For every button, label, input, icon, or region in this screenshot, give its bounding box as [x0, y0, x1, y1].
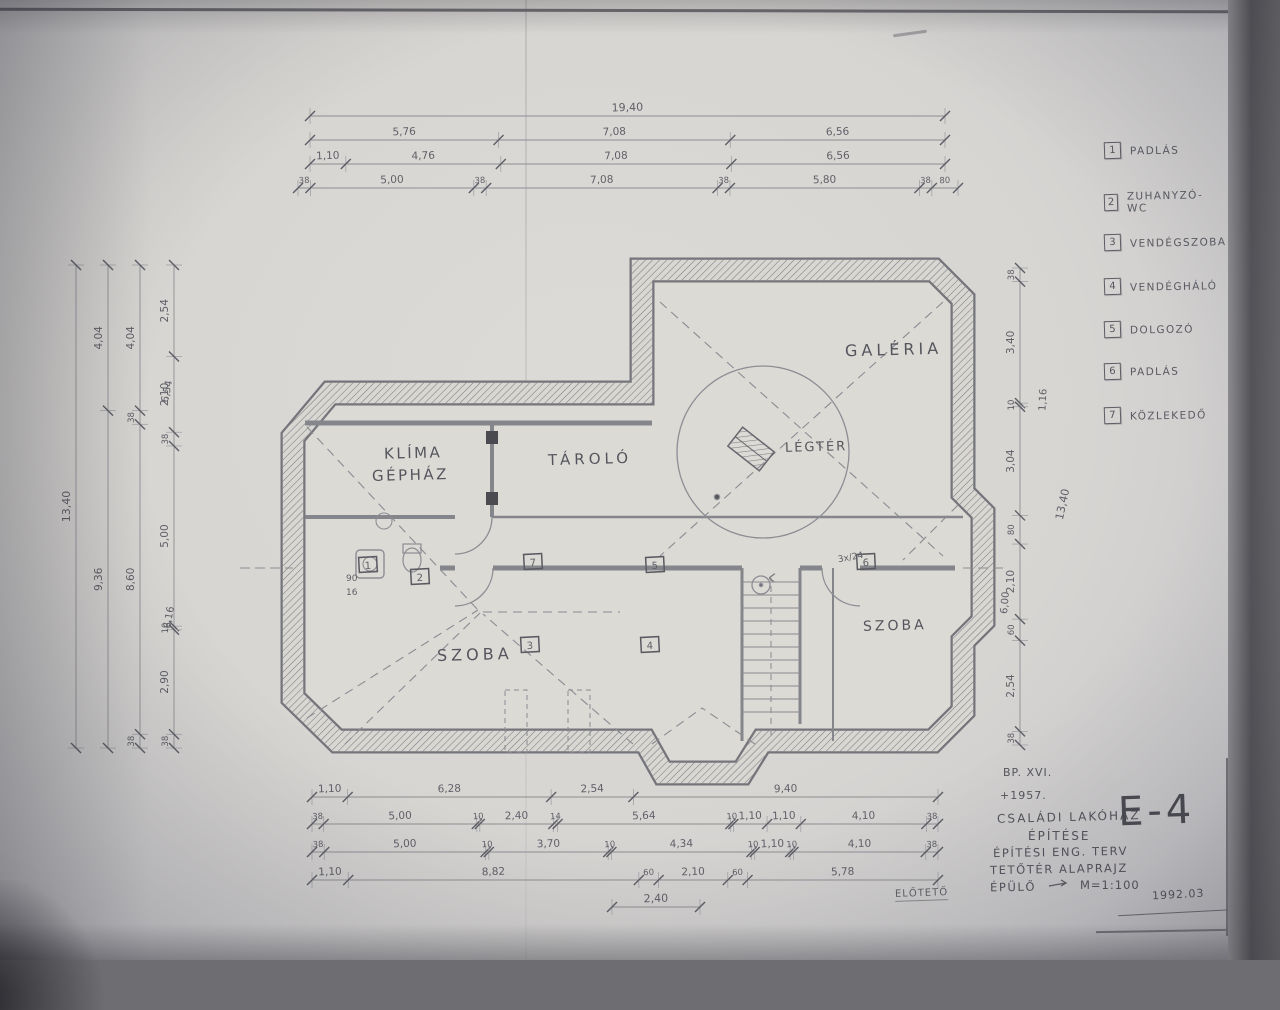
door-jamb — [486, 431, 498, 444]
north-arrow-icon — [1048, 878, 1070, 888]
porch-note: ELŐTETŐ — [895, 887, 949, 902]
room-label-gephaz: GÉPHÁZ — [372, 465, 449, 485]
dim-label: 6,56 — [826, 150, 850, 163]
dim-label: 5,80 — [813, 174, 837, 187]
dim-label: 7,08 — [602, 126, 626, 139]
sheet-number: E-4 — [1117, 787, 1196, 836]
dim-label: 1,10 — [738, 810, 762, 823]
dim-label: 4,76 — [411, 150, 435, 163]
room-label-galeria: GALÉRIA — [845, 339, 943, 361]
legend-label: PADLÁS — [1130, 365, 1179, 378]
dim-label: 1 — [364, 561, 371, 572]
dim-label: 38 — [718, 176, 729, 186]
legend-number-box: 4 — [1104, 278, 1122, 296]
dim-label: 5 — [651, 561, 658, 572]
title-sheet-name: TETŐTÉR ALAPRAJZ — [990, 861, 1128, 877]
legend-item: 2ZUHANYZÓ-WC — [1104, 190, 1206, 214]
legend-number-box: 5 — [1104, 321, 1122, 339]
dim-label: 80 — [1007, 524, 1017, 535]
dim-label: 4,10 — [848, 838, 872, 851]
dim-label: 8,60 — [125, 568, 137, 591]
door-width-note: 90 — [346, 574, 357, 584]
dim-label: 2,10 — [1005, 570, 1017, 593]
dim-label: 10 — [786, 840, 797, 850]
dim-label: 5,64 — [632, 810, 656, 823]
legend-item: 1PADLÁS — [1104, 142, 1179, 159]
dim-label: 9,36 — [93, 567, 105, 591]
dim-label: 38 — [127, 412, 137, 423]
dim-label: 38 — [127, 736, 137, 747]
legend-label: VENDÉGHÁLÓ — [1130, 280, 1218, 294]
dim-label: 2,10 — [681, 866, 705, 879]
dim-label: 38 — [161, 736, 171, 747]
dim-label: 10 — [604, 840, 615, 850]
dim-label: 5,00 — [388, 810, 412, 823]
dim-label: 13,40 — [1053, 488, 1072, 522]
dim-label: 10 — [482, 840, 493, 850]
dim-label: 38 — [1007, 733, 1017, 744]
dim-label: 38 — [299, 176, 310, 186]
dim-label: 60 — [643, 868, 654, 878]
room-label-szoba-left: SZOBA — [437, 644, 513, 665]
dim-label: 38 — [927, 812, 938, 822]
room-label-legter: LÉGTÉR — [785, 439, 848, 456]
photo-background-edge — [1228, 0, 1280, 960]
dim-label: 2 — [416, 573, 423, 584]
title-extra: ÉPÜLŐ — [990, 880, 1036, 895]
legend-number-box: 7 — [1104, 407, 1122, 425]
dim-label: 2,54 — [159, 299, 171, 323]
legend-label: ZUHANYZÓ-WC — [1127, 189, 1206, 214]
dim-label: 1,10 — [760, 838, 784, 851]
dim-label: 4,10 — [852, 810, 876, 823]
dim-label: 6,00 — [999, 591, 1012, 614]
dim-label: 9,40 — [774, 783, 798, 796]
dim-label: 38 — [312, 840, 323, 850]
dim-label: 38 — [1007, 269, 1017, 280]
dim-label: 3,40 — [1005, 331, 1017, 354]
room-label-klima: KLÍMA — [384, 443, 443, 463]
legend-label: PADLÁS — [1130, 144, 1179, 157]
room-label-tarolo: TÁROLÓ — [548, 449, 633, 469]
dim-label: 7,08 — [604, 150, 628, 163]
legend-label: DOLGOZÓ — [1130, 323, 1194, 336]
legend-item: 6PADLÁS — [1104, 363, 1179, 380]
dim-label: 5,76 — [392, 126, 416, 139]
dim-label: 19,40 — [611, 100, 643, 114]
legend-label: KÖZLEKEDŐ — [1130, 409, 1207, 422]
door-jamb — [486, 492, 498, 505]
dim-label: 7 — [529, 558, 536, 569]
drawing-date: 1992.03 — [1152, 887, 1205, 903]
dim-label: 4 — [646, 641, 653, 652]
room-label-szoba-right: SZOBA — [863, 617, 927, 635]
dim-label: 3 — [526, 641, 533, 652]
dim-label: 2,90 — [159, 670, 171, 693]
dim-label: 80 — [939, 176, 950, 186]
dim-label: 10 — [1007, 400, 1017, 411]
dim-label: 38 — [920, 176, 931, 186]
dim-label: 5,00 — [159, 524, 171, 547]
legend-number-box: 1 — [1104, 142, 1122, 160]
dim-label: 38 — [312, 812, 323, 822]
dim-label: 4,04 — [93, 326, 105, 350]
dim-label: 8,82 — [482, 866, 506, 879]
dim-label: 2,40 — [643, 892, 668, 906]
legend-item: 5DOLGOZÓ — [1104, 321, 1194, 338]
legend-label: VENDÉGSZOBA — [1130, 236, 1227, 250]
legend-item: 4VENDÉGHÁLÓ — [1104, 278, 1217, 295]
legend-number-box: 3 — [1104, 234, 1122, 252]
dim-label: 3,70 — [537, 838, 561, 851]
dim-label: 1,10 — [316, 150, 340, 163]
dim-label: 1,10 — [772, 810, 796, 823]
dim-label: 60 — [732, 868, 743, 878]
dim-label: 1,10 — [318, 866, 342, 879]
dim-label: 38 — [161, 434, 171, 445]
dim-label: 5,00 — [393, 838, 417, 851]
legend-item: 3VENDÉGSZOBA — [1104, 234, 1226, 251]
title-lot-number: +1957. — [1000, 789, 1047, 802]
door-sub-note: 16 — [346, 588, 357, 598]
dim-label: 6,28 — [437, 783, 461, 796]
dim-label: 4,04 — [125, 326, 137, 350]
dim-label: 10 — [726, 812, 737, 822]
scanned-floorplan-photo: 19,405,767,086,561,104,767,086,56385,003… — [0, 0, 1280, 960]
title-district: BP. XVI. — [1003, 766, 1052, 779]
dim-label: 2,40 — [505, 810, 529, 823]
dim-label: 38 — [474, 176, 485, 186]
dim-label: 5,00 — [380, 174, 404, 187]
dim-label: 7,08 — [590, 174, 614, 187]
dim-label: 38 — [926, 840, 937, 850]
dim-label: 13,40 — [60, 491, 73, 523]
dim-label: 10 — [473, 812, 484, 822]
dim-label: 1,16 — [1037, 388, 1049, 411]
dim-label: 2,54 — [580, 783, 604, 796]
legend-number-box: 6 — [1104, 363, 1122, 381]
dim-label: 60 — [1007, 624, 1017, 635]
legend-number-box: 2 — [1104, 193, 1119, 210]
title-project-name2: ÉPÍTÉSE — [1028, 829, 1090, 843]
dim-label: 3,04 — [1005, 449, 1017, 473]
dim-label: 5,78 — [831, 866, 855, 879]
title-doc-type: ÉPÍTÉSI ENG. TERV — [993, 844, 1128, 860]
dim-label: 2,54 — [1005, 674, 1017, 698]
legend-item: 7KÖZLEKEDŐ — [1104, 407, 1207, 424]
dim-label: 1,10 — [318, 783, 342, 796]
dim-label: 10 — [747, 840, 758, 850]
dim-label: 4,34 — [669, 838, 693, 851]
drawing-scale: M=1:100 — [1080, 878, 1140, 892]
dim-label: 6,56 — [826, 126, 850, 139]
dim-label: 14 — [550, 812, 561, 822]
